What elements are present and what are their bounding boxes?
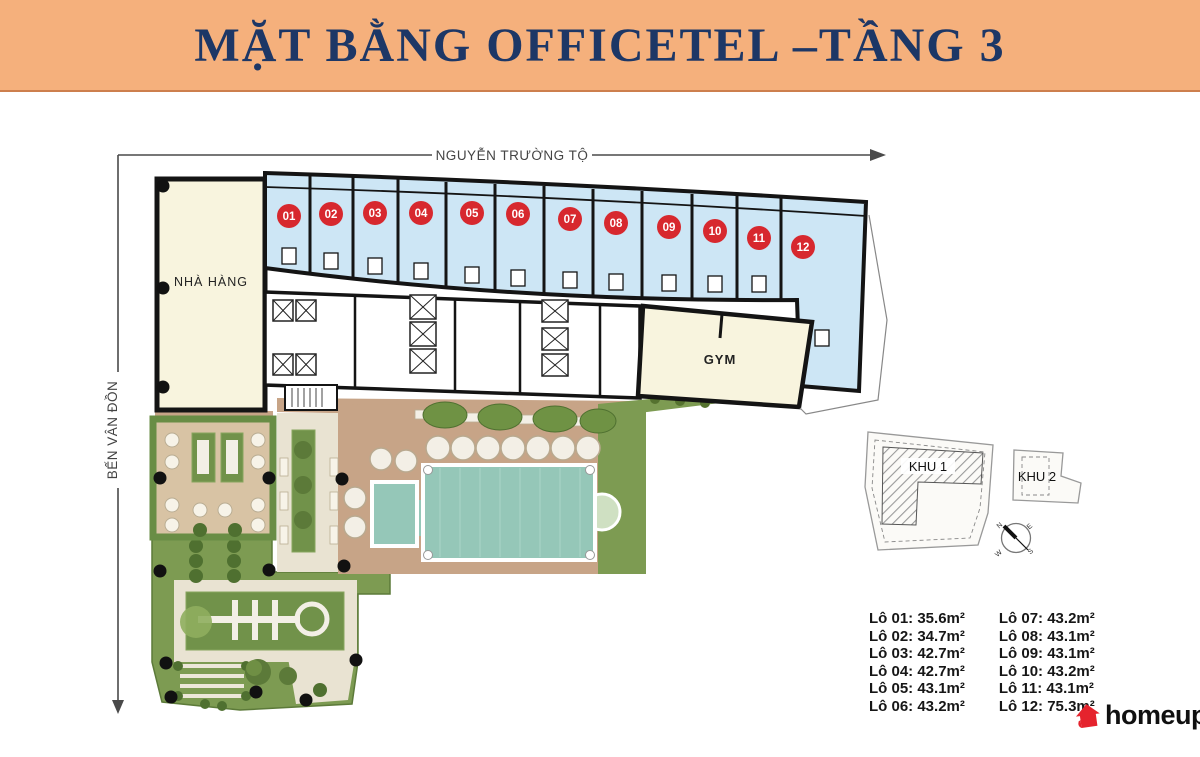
svg-text:11: 11: [753, 233, 766, 245]
dining-terrace: [153, 419, 273, 537]
svg-text:12: 12: [797, 242, 810, 254]
unit-marker: 11: [747, 226, 771, 250]
unit-marker: 09: [657, 215, 681, 239]
legend-item: Lô 02: 34.7m²: [869, 628, 965, 646]
kids-pool: [372, 482, 417, 546]
gym-label: GYM: [704, 352, 737, 367]
compass-icon: N E S W: [994, 522, 1035, 559]
restaurant-label: NHÀ HÀNG: [174, 274, 248, 289]
legend-item: Lô 11: 43.1m²: [999, 680, 1095, 698]
legend-item: Lô 04: 42.7m²: [869, 663, 965, 681]
page-title: MẶT BẰNG OFFICETEL –TẦNG 3: [194, 18, 1005, 73]
svg-text:09: 09: [663, 222, 676, 234]
svg-text:03: 03: [369, 208, 382, 220]
logo-text: homeup: [1105, 700, 1200, 731]
legend-column-1: Lô 01: 35.6m² Lô 02: 34.7m² Lô 03: 42.7m…: [869, 610, 965, 716]
unit-marker: 06: [506, 202, 530, 226]
legend-item: Lô 01: 35.6m²: [869, 610, 965, 628]
restaurant-room: [157, 179, 265, 410]
svg-text:10: 10: [709, 226, 722, 238]
unit-marker: 07: [558, 207, 582, 231]
tree: [180, 606, 212, 638]
arrow-down-icon: [112, 700, 124, 714]
svg-text:02: 02: [325, 209, 338, 221]
unit-marker: 10: [703, 219, 727, 243]
street-label-top: NGUYỄN TRƯỜNG TỘ: [436, 148, 589, 163]
unit-marker: 08: [604, 211, 628, 235]
stairs: [285, 385, 337, 410]
walkway: [277, 413, 338, 572]
area-legend: Lô 01: 35.6m² Lô 02: 34.7m² Lô 03: 42.7m…: [869, 610, 1095, 716]
legend-item: Lô 07: 43.2m²: [999, 610, 1095, 628]
svg-text:06: 06: [512, 209, 525, 221]
compass-n: N: [996, 522, 1004, 531]
unit-marker: 05: [460, 201, 484, 225]
unit-marker: 01: [277, 204, 301, 228]
street-label-left: BẾN VÂN ĐỒN: [105, 381, 120, 480]
svg-text:08: 08: [610, 218, 623, 230]
khu1-label: KHU 1: [909, 459, 947, 474]
svg-text:07: 07: [564, 214, 577, 226]
legend-item: Lô 08: 43.1m²: [999, 628, 1095, 646]
title-banner: MẶT BẰNG OFFICETEL –TẦNG 3: [0, 0, 1200, 92]
core-block: [265, 292, 640, 410]
compass-w: W: [994, 549, 1004, 559]
house-icon: [1074, 701, 1102, 731]
lawn-strip: [598, 408, 646, 574]
homeup-logo: homeup: [1074, 700, 1200, 731]
unit-marker: 12: [791, 235, 815, 259]
unit-marker: 02: [319, 202, 343, 226]
legend-item: Lô 09: 43.1m²: [999, 645, 1095, 663]
svg-text:05: 05: [466, 208, 479, 220]
arrow-right-icon: [870, 149, 886, 161]
legend-item: Lô 10: 43.2m²: [999, 663, 1095, 681]
compass-s: S: [1027, 548, 1035, 557]
legend-item: Lô 05: 43.1m²: [869, 680, 965, 698]
khu2-label: KHU 2: [1018, 469, 1056, 484]
svg-text:04: 04: [415, 208, 428, 220]
legend-item: Lô 03: 42.7m²: [869, 645, 965, 663]
unit-marker: 03: [363, 201, 387, 225]
unit-marker: 04: [409, 201, 433, 225]
key-plan: KHU 1 KHU 2 N E S W: [865, 432, 1081, 559]
legend-item: Lô 06: 43.2m²: [869, 698, 965, 716]
svg-text:01: 01: [283, 211, 296, 223]
